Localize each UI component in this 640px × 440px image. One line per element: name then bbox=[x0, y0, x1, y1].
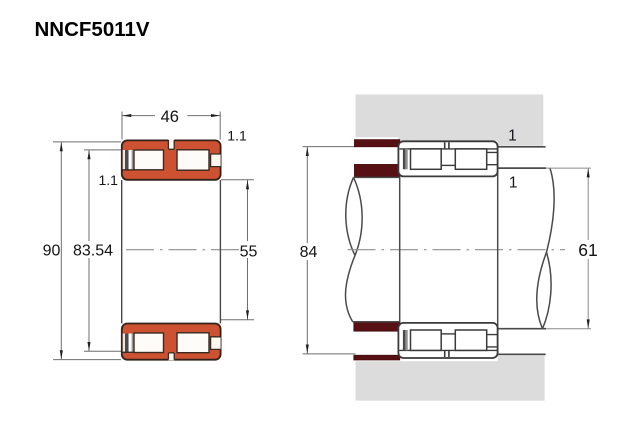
svg-text:1: 1 bbox=[509, 174, 518, 191]
svg-text:1.1: 1.1 bbox=[99, 172, 119, 188]
svg-text:83.54: 83.54 bbox=[73, 242, 113, 259]
svg-text:61: 61 bbox=[578, 240, 597, 260]
svg-text:46: 46 bbox=[161, 108, 179, 126]
svg-text:1: 1 bbox=[508, 128, 517, 145]
svg-text:90: 90 bbox=[43, 242, 61, 259]
svg-text:55: 55 bbox=[240, 243, 258, 260]
svg-text:84: 84 bbox=[300, 244, 318, 261]
svg-text:1.1: 1.1 bbox=[227, 128, 247, 144]
svg-text:NNCF5011V: NNCF5011V bbox=[35, 18, 150, 41]
